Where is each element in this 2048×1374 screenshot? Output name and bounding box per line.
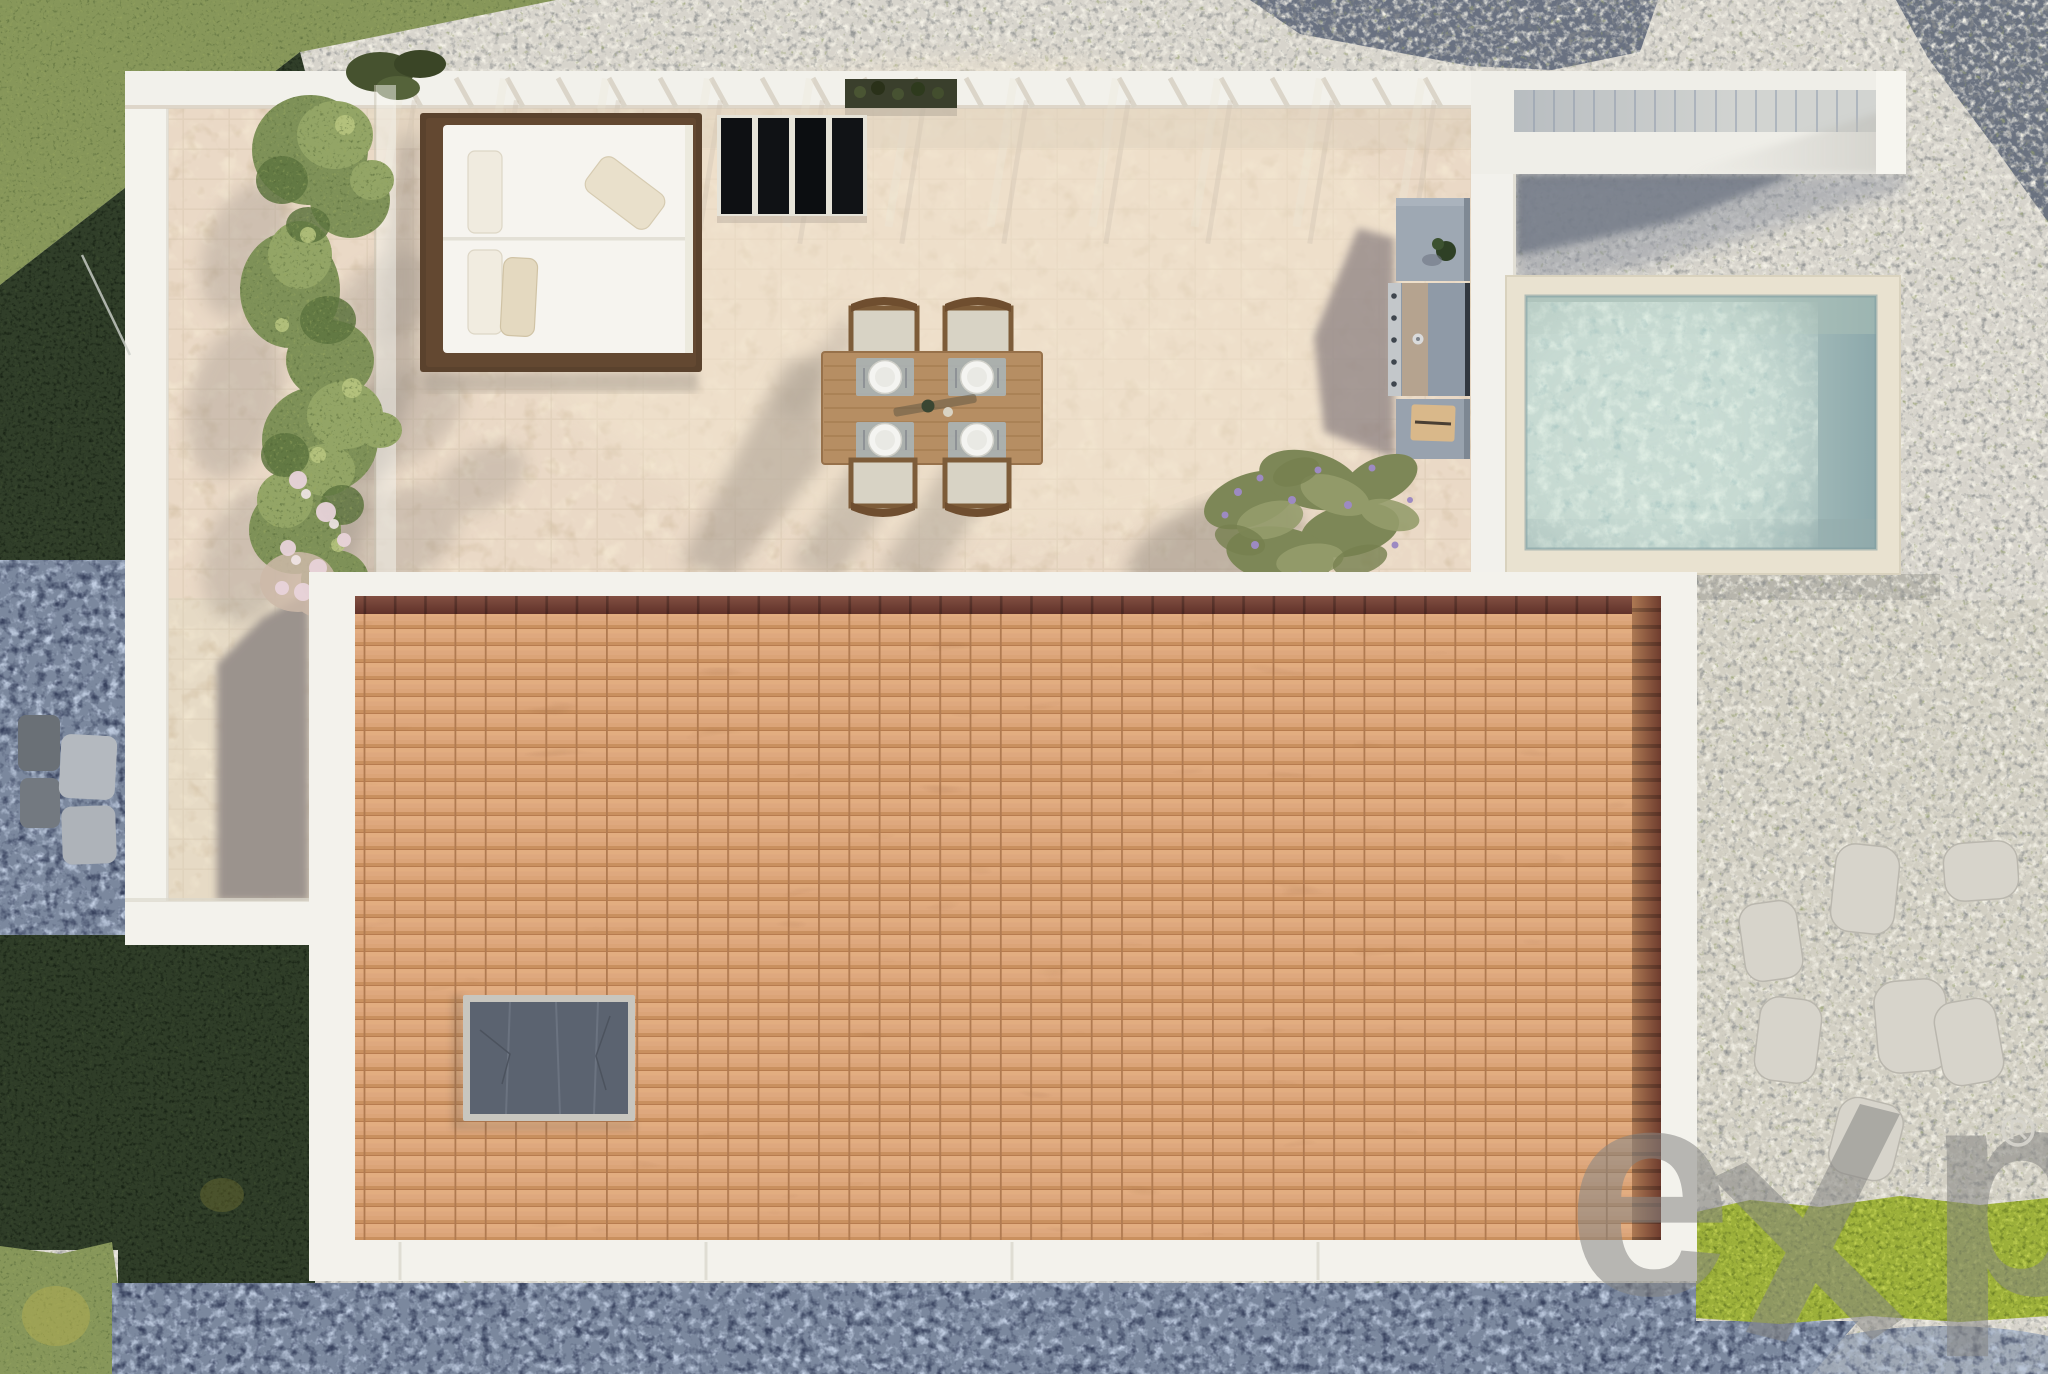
svg-text:p: p (1926, 1022, 2048, 1360)
svg-text:e: e (1566, 1022, 1725, 1358)
